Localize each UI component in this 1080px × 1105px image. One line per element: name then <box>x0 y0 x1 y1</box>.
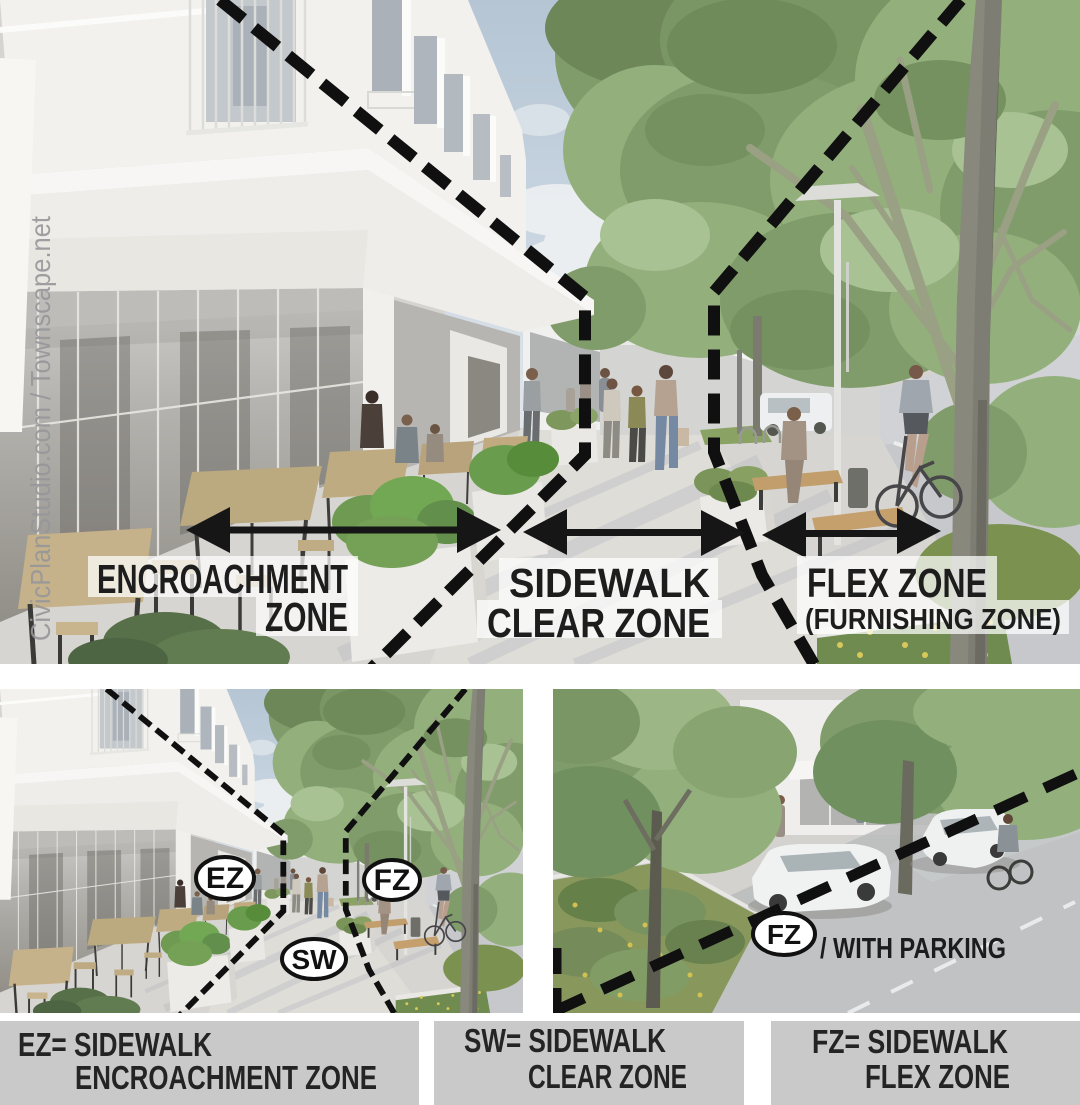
svg-text:EZ: EZ <box>206 862 244 895</box>
svg-text:EZ= SIDEWALK: EZ= SIDEWALK <box>18 1026 212 1063</box>
svg-text:CLEAR ZONE: CLEAR ZONE <box>528 1058 687 1095</box>
svg-text:ZONE: ZONE <box>265 594 348 640</box>
svg-text:CLEAR ZONE: CLEAR ZONE <box>487 600 710 646</box>
svg-text:ENCROACHMENT ZONE: ENCROACHMENT ZONE <box>75 1059 377 1096</box>
svg-text:/ WITH PARKING: / WITH PARKING <box>820 933 1006 965</box>
svg-text:(FURNISHING ZONE): (FURNISHING ZONE) <box>805 604 1061 636</box>
svg-text:FLEX ZONE: FLEX ZONE <box>865 1058 1010 1095</box>
svg-text:SW: SW <box>291 944 337 975</box>
svg-text:FLEX ZONE: FLEX ZONE <box>807 560 987 606</box>
svg-text:FZ= SIDEWALK: FZ= SIDEWALK <box>812 1023 1008 1060</box>
svg-text:SW= SIDEWALK: SW= SIDEWALK <box>464 1022 666 1059</box>
svg-text:FZ: FZ <box>767 919 801 950</box>
svg-text:FZ: FZ <box>374 864 411 897</box>
svg-text:CivicPlanStudio.com / Townscap: CivicPlanStudio.com / Townscape.net <box>25 216 56 641</box>
